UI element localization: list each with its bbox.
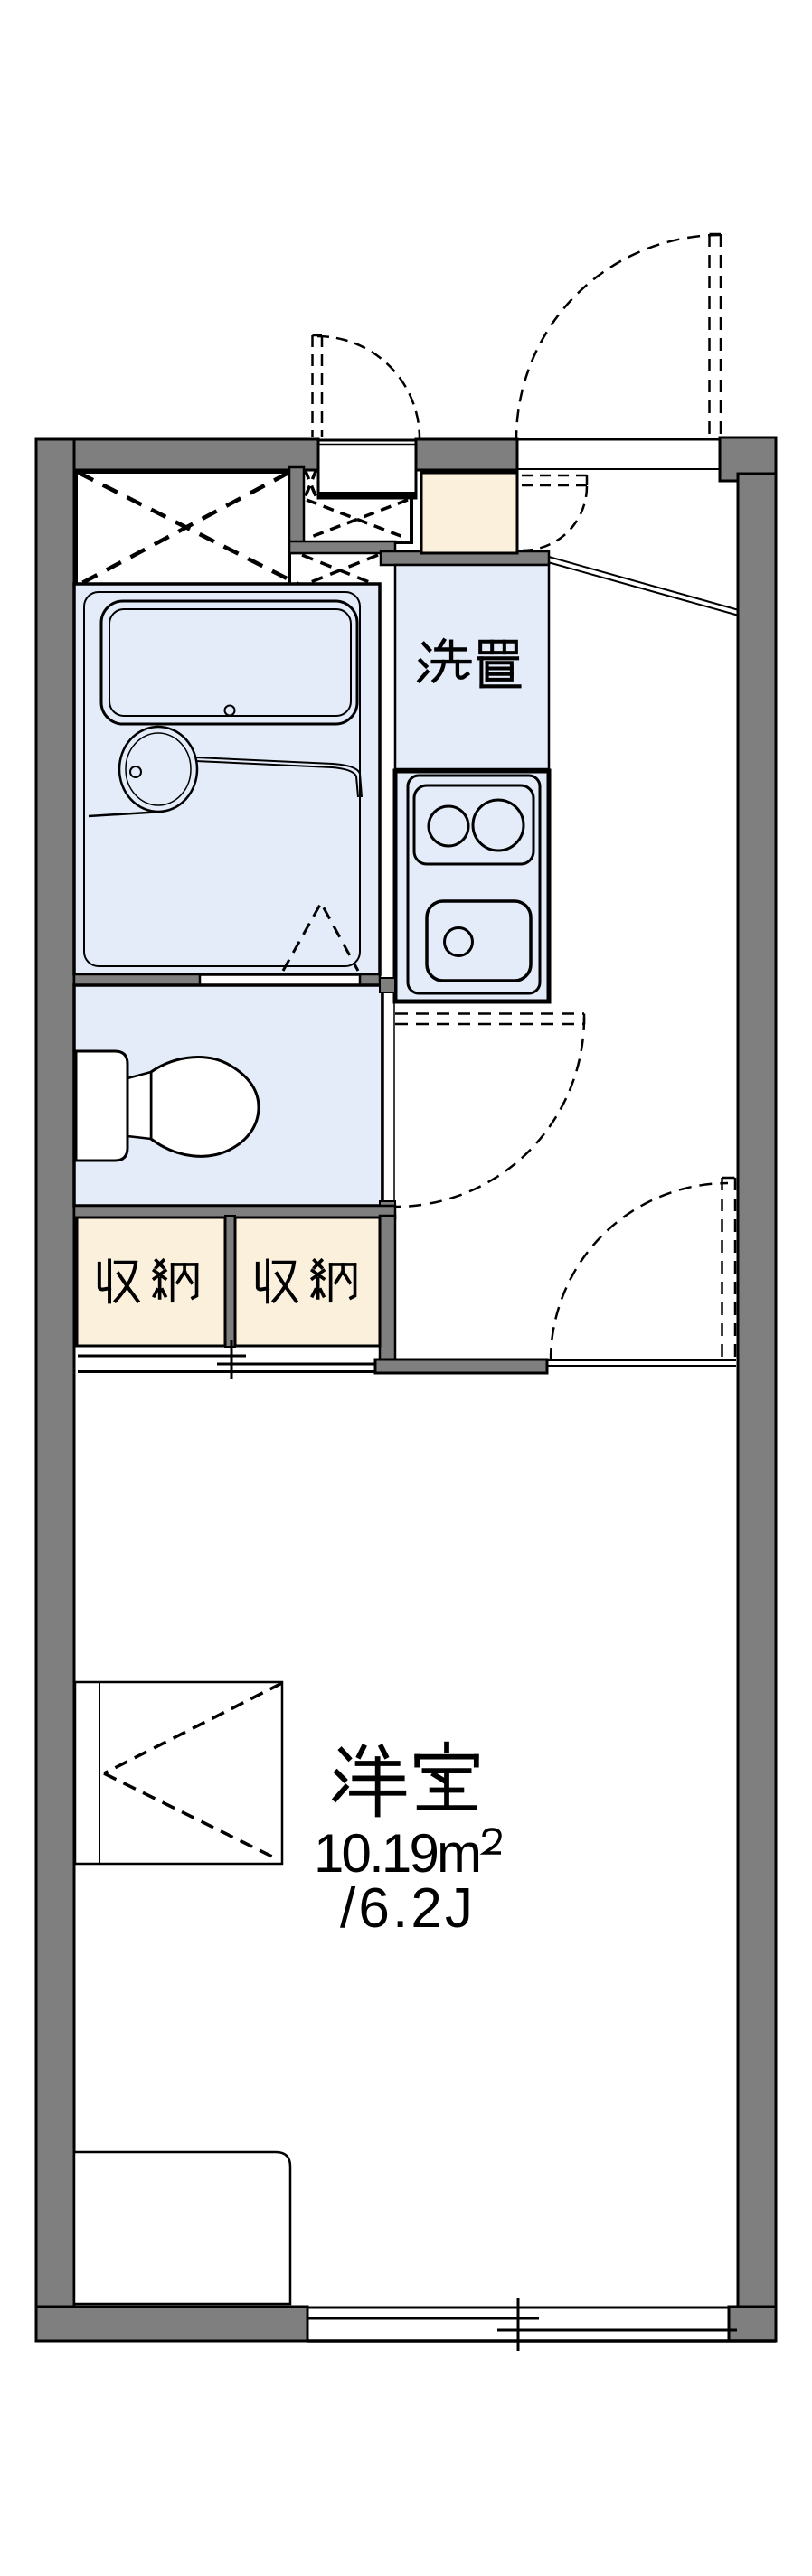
svg-text:10.19m: 10.19m: [314, 1823, 482, 1884]
svg-text:/6.2J: /6.2J: [340, 1877, 473, 1940]
